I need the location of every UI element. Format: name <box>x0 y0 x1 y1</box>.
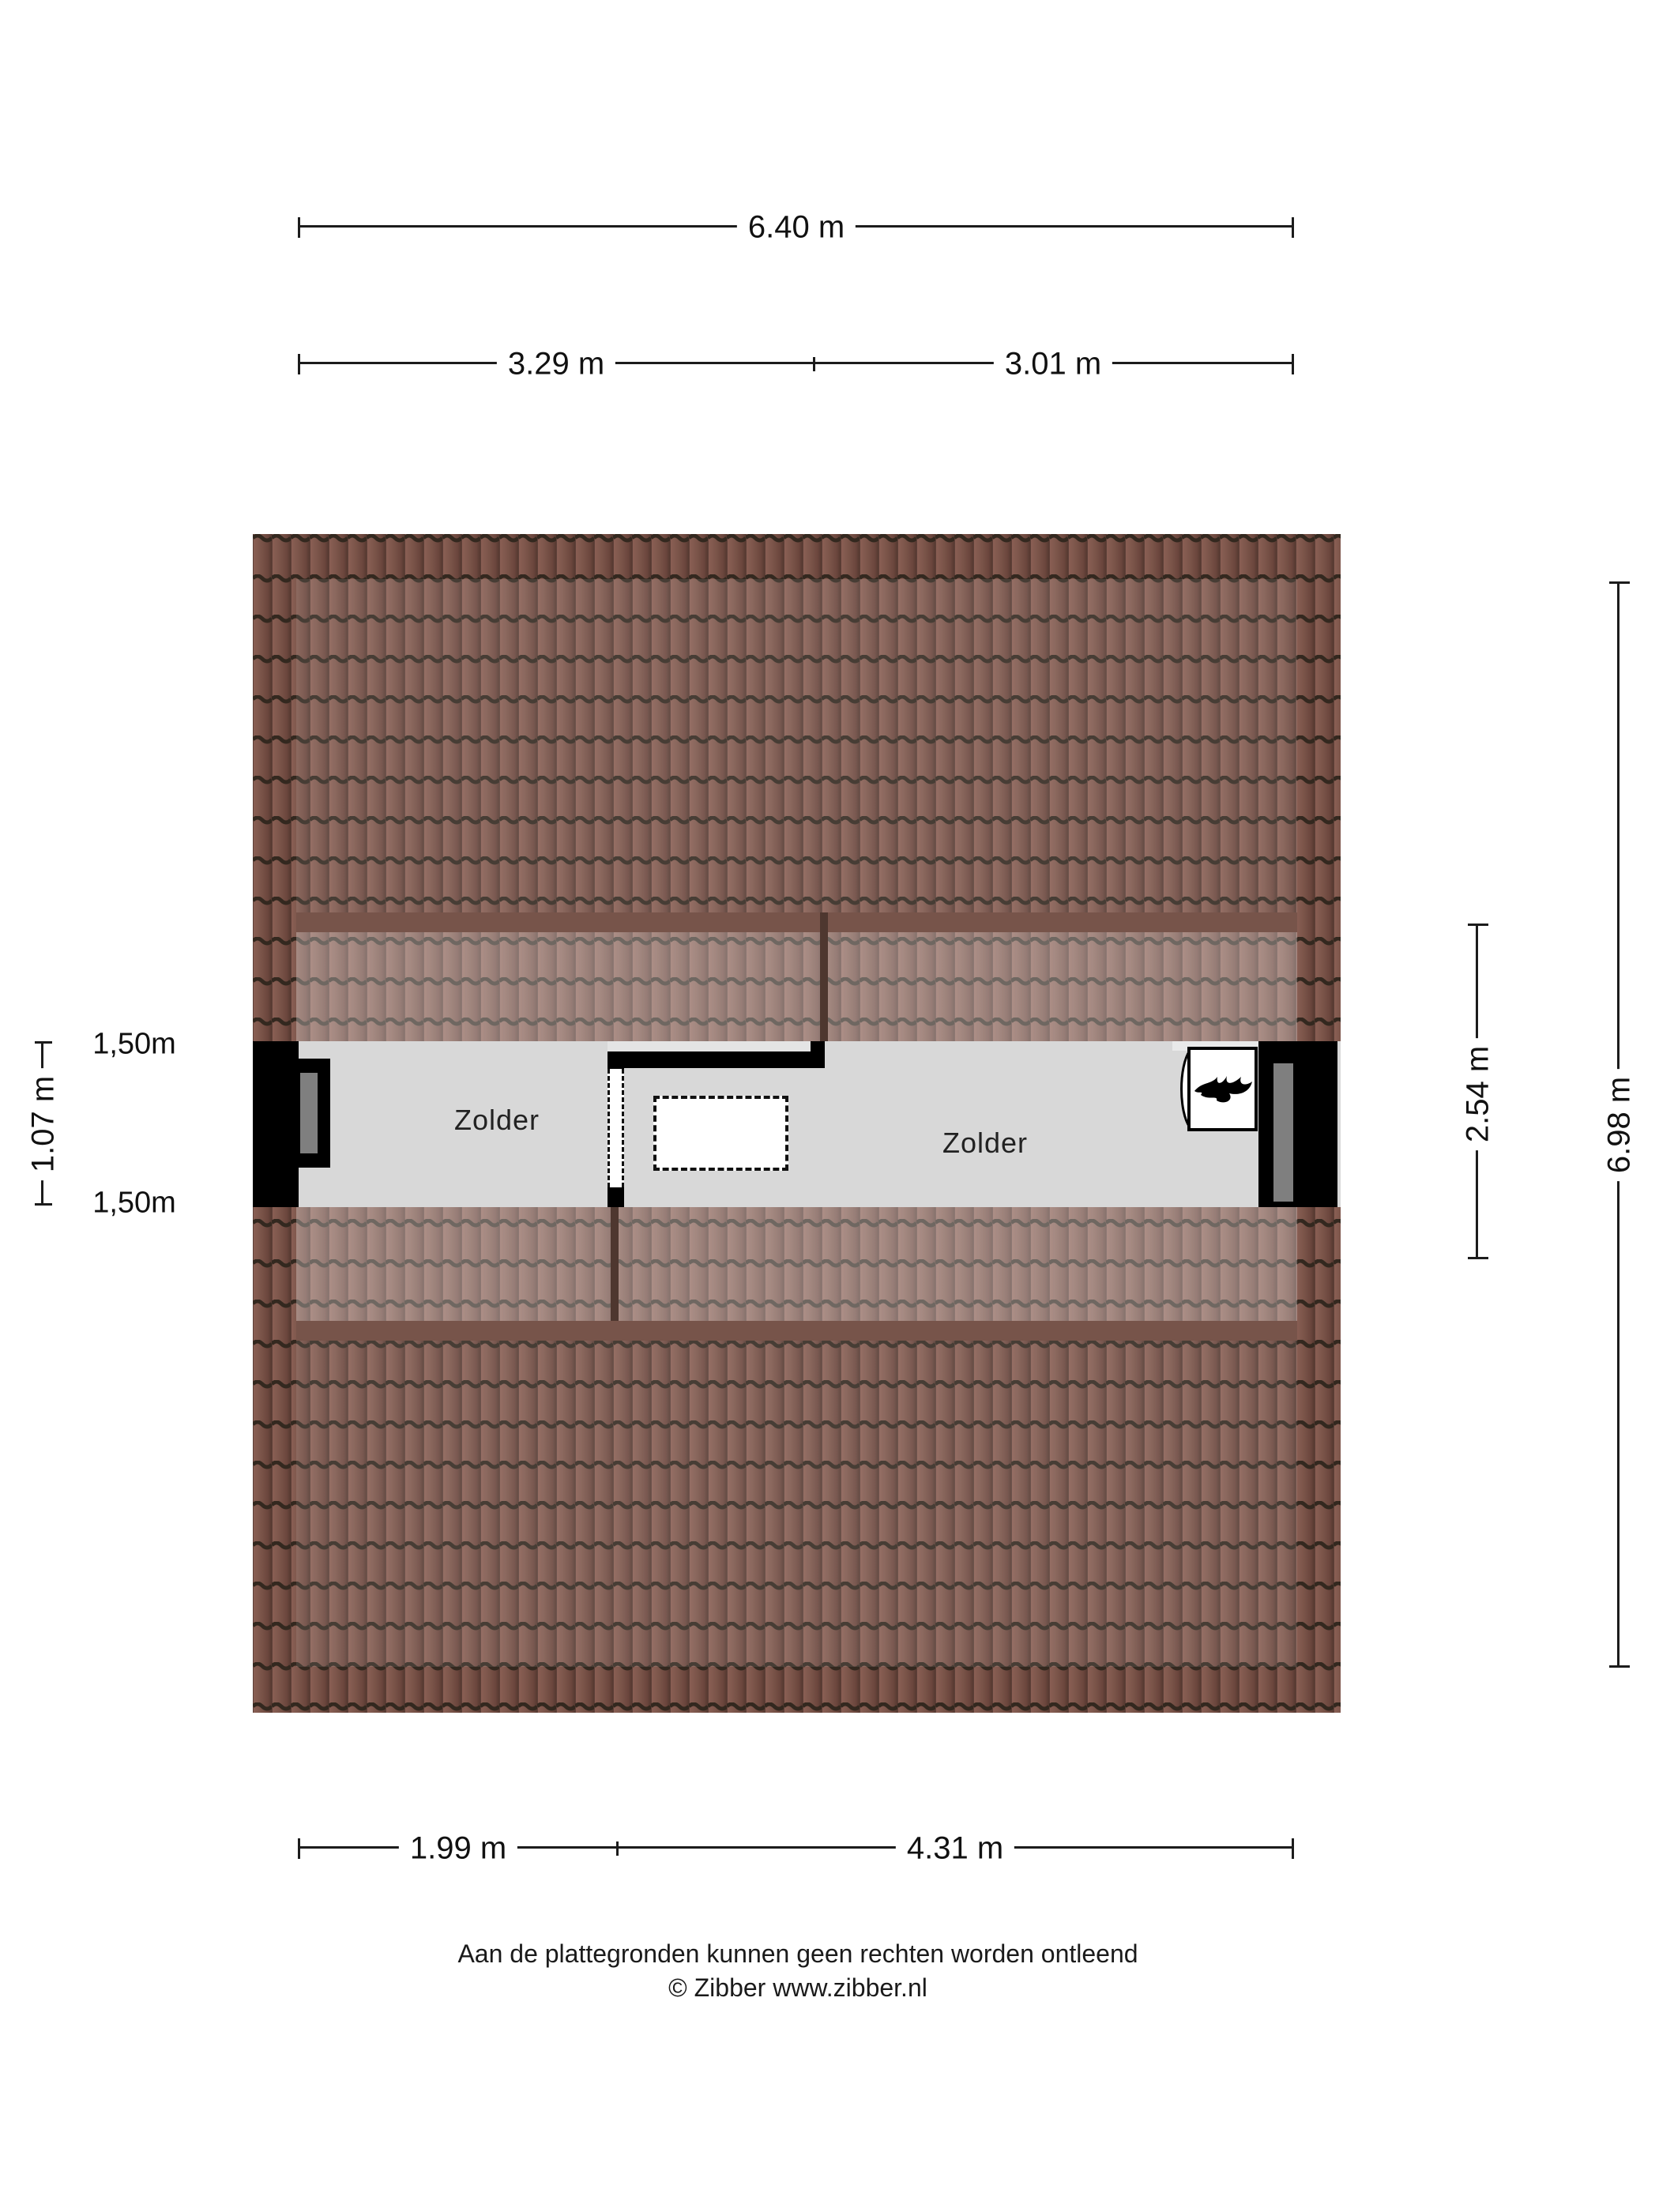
stair-void-dashed <box>653 1096 788 1171</box>
dim-label-left-total: 1.07 m <box>24 1068 63 1180</box>
boiler-unit <box>1172 1047 1258 1131</box>
dim-label-left-upper: 1,50m <box>92 1028 176 1062</box>
dim-line-top-split: 3.29 m 3.01 m <box>299 362 1293 364</box>
room-label-zolder-right: Zolder <box>942 1127 1028 1160</box>
dim-label-right-room: 2.54 m <box>1459 1038 1498 1150</box>
wall-inner-top <box>624 1051 811 1068</box>
dim-label-left-lower: 1,50m <box>92 1187 176 1221</box>
dim-label-top-total: 6.40 m <box>737 209 856 247</box>
dim-line-top-total: 6.40 m <box>299 225 1293 228</box>
dim-line-left-total: 1.07 m <box>41 1043 43 1205</box>
window-pane-left <box>300 1073 318 1153</box>
wall-doorway-stub-bottom <box>608 1187 624 1207</box>
window-pane-right <box>1273 1063 1293 1202</box>
room-label-zolder-left: Zolder <box>454 1104 540 1137</box>
dim-label-top-left: 3.29 m <box>497 345 615 384</box>
dim-line-right-room: 2.54 m <box>1476 925 1478 1258</box>
dim-label-top-right: 3.01 m <box>994 345 1112 384</box>
wall-edge-top <box>608 1041 811 1051</box>
dim-label-bottom-left: 1.99 m <box>399 1830 517 1868</box>
dim-line-right-total: 6.98 m <box>1617 583 1619 1667</box>
footer-copyright: © Zibber www.zibber.nl <box>668 1973 927 2003</box>
dim-line-bottom-split: 1.99 m 4.31 m <box>299 1846 1293 1849</box>
dim-label-bottom-right: 4.31 m <box>896 1830 1014 1868</box>
floorplan-canvas: Zolder Zolder 6.40 m 3.29 m 3.01 m 1.99 … <box>0 0 1659 2212</box>
wall-doorway-stub-top <box>608 1051 624 1069</box>
doorway-opening <box>608 1069 624 1187</box>
wall-left <box>253 1041 299 1207</box>
footer-disclaimer: Aan de plattegronden kunnen geen rechten… <box>457 1939 1138 1969</box>
wall-right <box>1258 1041 1337 1207</box>
wall-inner-step <box>811 1041 825 1068</box>
dim-label-right-total: 6.98 m <box>1601 1069 1639 1181</box>
